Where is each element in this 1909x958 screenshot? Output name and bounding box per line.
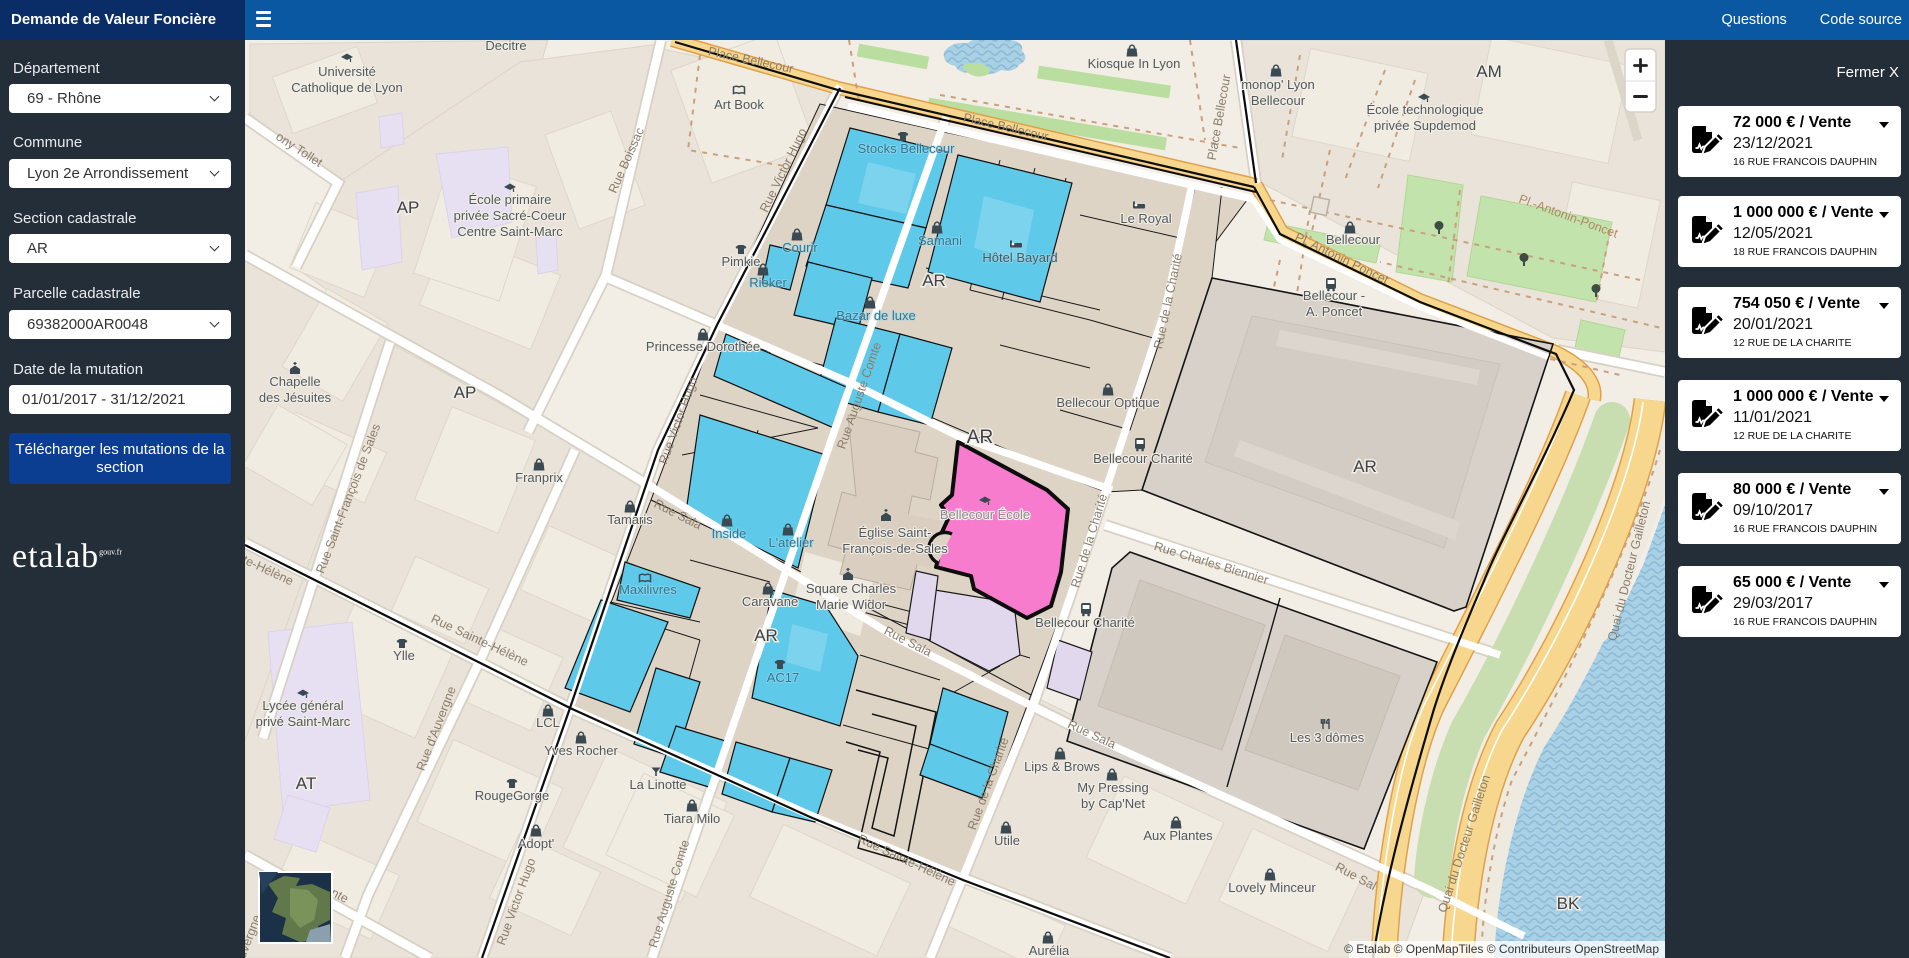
svg-text:Inside: Inside xyxy=(712,526,747,541)
svg-text:Bellecour École: Bellecour École xyxy=(940,507,1030,522)
svg-text:Kiosque In Lyon: Kiosque In Lyon xyxy=(1088,56,1181,71)
svg-text:AP: AP xyxy=(397,198,420,217)
svg-text:AR: AR xyxy=(754,626,778,645)
svg-text:Bellecour Charité: Bellecour Charité xyxy=(1093,451,1193,466)
svg-text:Bellecour: Bellecour xyxy=(1251,93,1306,108)
svg-text:Tiara Milo: Tiara Milo xyxy=(664,811,721,826)
svg-text:Lycée général: Lycée général xyxy=(262,698,343,713)
svg-text:École technologique: École technologique xyxy=(1366,102,1483,117)
svg-text:by Cap'Net: by Cap'Net xyxy=(1081,796,1145,811)
svg-text:Franprix: Franprix xyxy=(515,470,563,485)
svg-text:Princesse Dorothée: Princesse Dorothée xyxy=(646,339,760,354)
svg-text:Bellecour: Bellecour xyxy=(1326,232,1381,247)
svg-text:Tamaris: Tamaris xyxy=(607,512,653,527)
svg-text:AT: AT xyxy=(296,774,316,793)
svg-text:École primaire: École primaire xyxy=(468,192,551,207)
svg-text:AC17: AC17 xyxy=(767,670,800,685)
svg-text:AR: AR xyxy=(1353,457,1377,476)
svg-text:A. Poncet: A. Poncet xyxy=(1306,304,1363,319)
svg-text:La Linotte: La Linotte xyxy=(629,777,686,792)
svg-text:Marie Widor: Marie Widor xyxy=(816,597,887,612)
svg-text:Hôtel Bayard: Hôtel Bayard xyxy=(982,250,1057,265)
svg-text:Maxilivres: Maxilivres xyxy=(619,582,677,597)
svg-text:Le Royal: Le Royal xyxy=(1120,211,1171,226)
svg-text:My Pressing: My Pressing xyxy=(1077,780,1149,795)
svg-text:Square Charles: Square Charles xyxy=(806,581,897,596)
svg-text:Aurélia: Aurélia xyxy=(1029,943,1070,958)
svg-text:AR: AR xyxy=(922,271,946,290)
svg-text:Stocks Bellecour: Stocks Bellecour xyxy=(858,141,955,156)
svg-text:L'atelier: L'atelier xyxy=(768,535,814,550)
svg-text:Catholique de Lyon: Catholique de Lyon xyxy=(291,80,403,95)
svg-text:Yves Rocher: Yves Rocher xyxy=(544,743,618,758)
svg-text:Pimkie: Pimkie xyxy=(721,254,760,269)
svg-text:Utile: Utile xyxy=(994,833,1020,848)
svg-text:Chapelle: Chapelle xyxy=(269,374,320,389)
svg-text:Adopt': Adopt' xyxy=(518,836,554,851)
svg-text:Art Book: Art Book xyxy=(714,97,764,112)
svg-text:Lovely Minceur: Lovely Minceur xyxy=(1228,880,1316,895)
svg-text:François-de-Sales: François-de-Sales xyxy=(842,541,948,556)
svg-text:Aux Plantes: Aux Plantes xyxy=(1143,828,1213,843)
svg-text:© Etalab © OpenMapTiles © Cont: © Etalab © OpenMapTiles © Contributeurs … xyxy=(1344,942,1659,956)
svg-text:Caravane: Caravane xyxy=(742,594,798,609)
svg-text:RougeGorge: RougeGorge xyxy=(475,788,549,803)
svg-text:des Jésuites: des Jésuites xyxy=(259,390,332,405)
svg-text:Rieker: Rieker xyxy=(749,275,787,290)
svg-text:Université: Université xyxy=(318,64,376,79)
svg-text:privé Saint-Marc: privé Saint-Marc xyxy=(256,714,351,729)
svg-text:Ylle: Ylle xyxy=(393,648,415,663)
svg-text:Église Saint-: Église Saint- xyxy=(859,525,932,540)
svg-text:Courir: Courir xyxy=(782,240,818,255)
svg-text:BK: BK xyxy=(1557,894,1580,913)
svg-text:Bazar de luxe: Bazar de luxe xyxy=(836,308,916,323)
svg-text:privée Sacré-Coeur: privée Sacré-Coeur xyxy=(454,208,567,223)
svg-text:Bellecour Optique: Bellecour Optique xyxy=(1056,395,1159,410)
svg-text:Decitre: Decitre xyxy=(485,40,526,53)
svg-text:Lips & Brows: Lips & Brows xyxy=(1024,759,1100,774)
svg-text:LCL: LCL xyxy=(536,715,560,730)
svg-text:Samani: Samani xyxy=(918,233,962,248)
svg-text:AM: AM xyxy=(1476,62,1502,81)
svg-text:Bellecour Charité: Bellecour Charité xyxy=(1035,615,1135,630)
svg-text:Les 3 dômes: Les 3 dômes xyxy=(1290,730,1365,745)
svg-text:privée Supdemod: privée Supdemod xyxy=(1374,118,1476,133)
svg-text:AR: AR xyxy=(967,427,993,448)
svg-text:monop' Lyon: monop' Lyon xyxy=(1241,77,1315,92)
svg-text:Centre Saint-Marc: Centre Saint-Marc xyxy=(457,224,563,239)
svg-text:AP: AP xyxy=(454,383,477,402)
